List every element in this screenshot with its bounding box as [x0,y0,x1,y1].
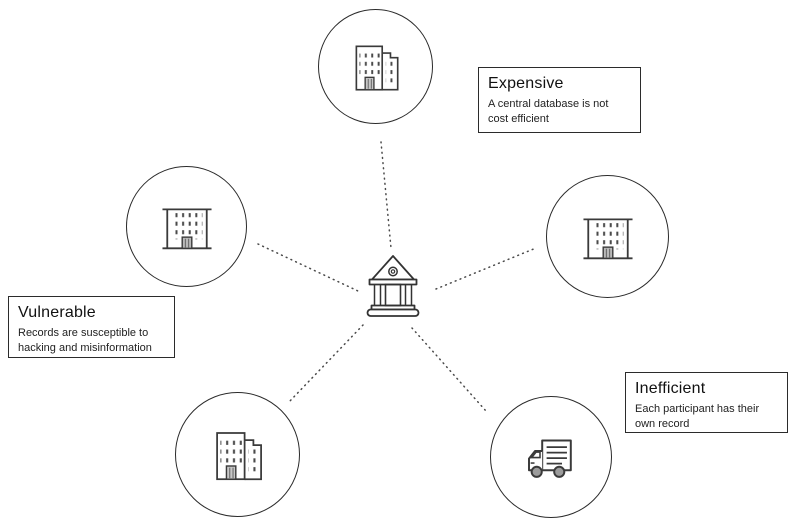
building-two-towers-icon [345,36,407,98]
callout-expensive-description: A central database is not cost efficient [488,97,631,126]
connector-center-to-left [258,244,358,291]
participant-node-bottom-left [175,392,300,517]
building-two-towers-icon [205,422,271,488]
connector-center-to-bottom-right [412,328,486,411]
callout-inefficient-description: Each participant has their own record [635,402,778,431]
building-flat-roof-icon [155,195,219,259]
callout-inefficient: Inefficient Each participant has their o… [625,372,788,433]
centralized-database-diagram: Expensive A central database is not cost… [0,0,800,519]
callout-expensive-title: Expensive [488,75,631,93]
delivery-truck-icon [518,424,584,490]
bank-icon [360,253,426,319]
participant-node-left [126,166,247,287]
callout-vulnerable-description: Records are susceptible to hacking and m… [18,326,165,355]
callout-inefficient-title: Inefficient [635,380,778,398]
central-database-node [360,253,426,319]
building-flat-roof-icon [576,205,640,269]
connector-center-to-bottom-left [288,325,363,403]
callout-expensive: Expensive A central database is not cost… [478,67,641,133]
connector-center-to-right [436,248,536,289]
connector-center-to-top [381,142,391,248]
callout-vulnerable: Vulnerable Records are susceptible to ha… [8,296,175,358]
participant-node-top [318,9,433,124]
participant-node-bottom-right [490,396,612,518]
participant-node-right [546,175,669,298]
callout-vulnerable-title: Vulnerable [18,304,165,322]
